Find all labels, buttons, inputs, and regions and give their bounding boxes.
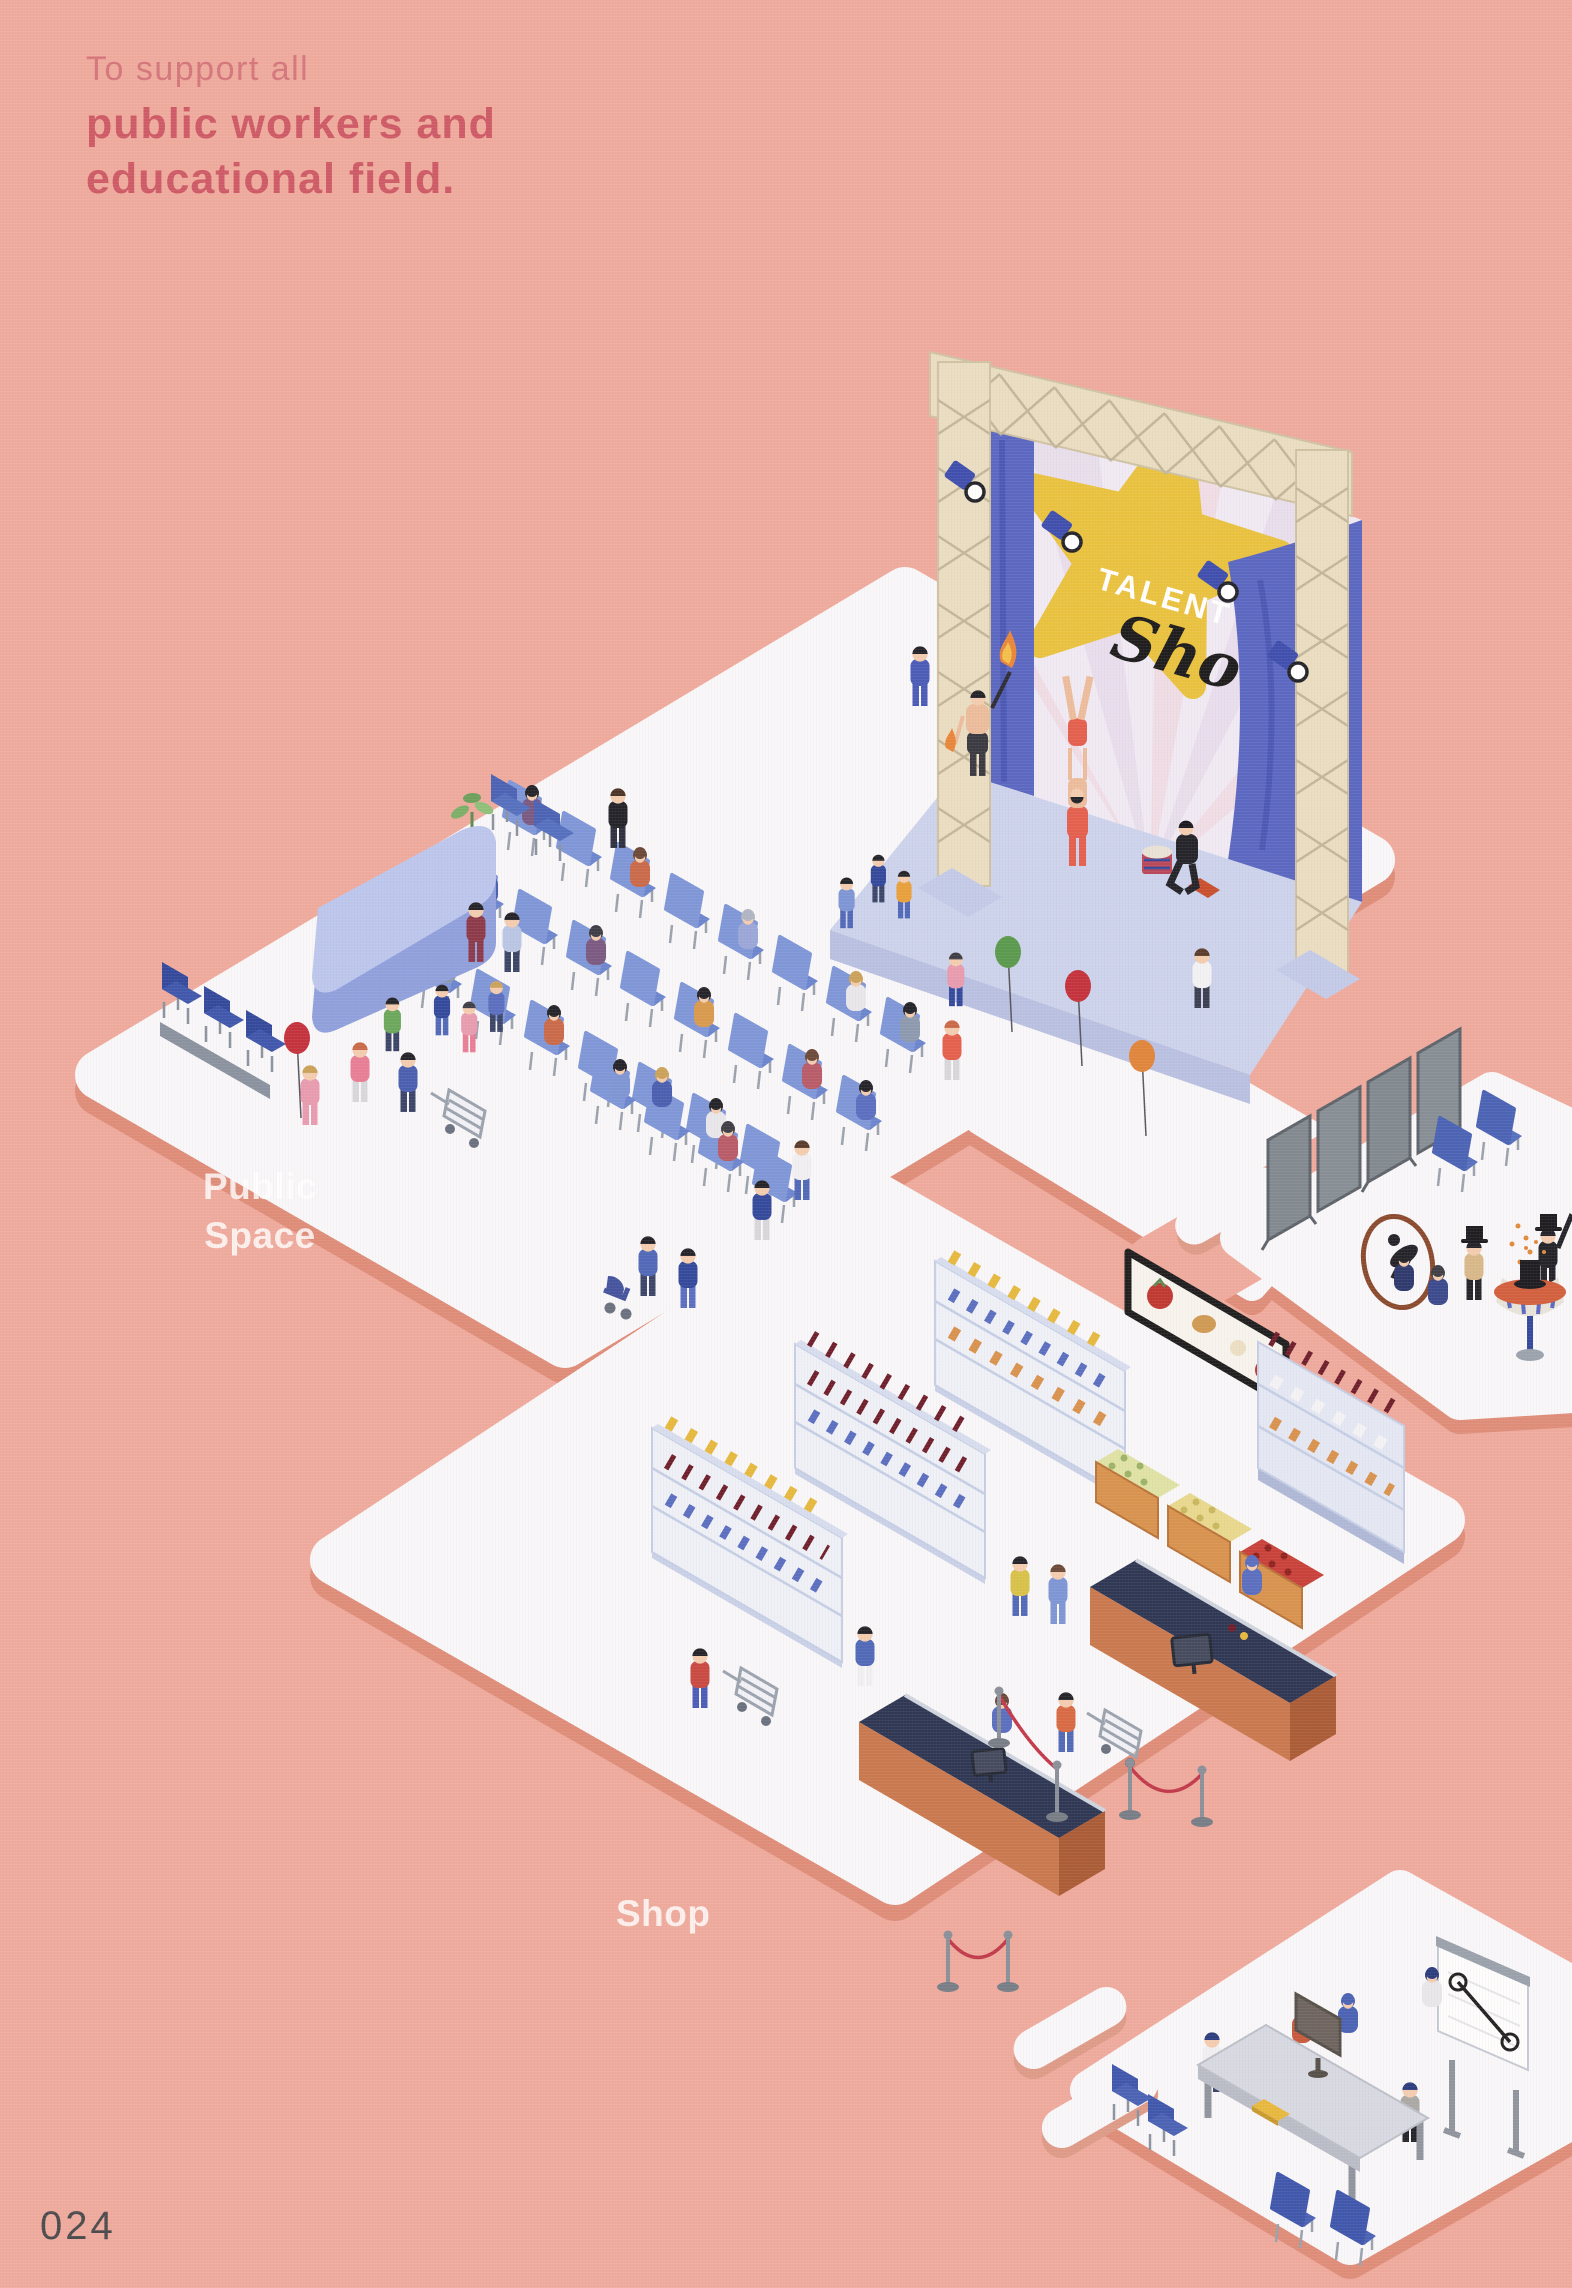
heading-intro: To support all [86,50,496,89]
public-space-label: Public Space [203,1163,317,1261]
heading-line2: educational field. [86,152,496,207]
isometric-illustration: TALENT Show [0,0,1572,2288]
page-heading: To support all public workers and educat… [86,50,496,207]
page-number: 024 [40,2204,116,2249]
shop-label: Shop [616,1890,710,1939]
heading-line1: public workers and [86,97,496,152]
